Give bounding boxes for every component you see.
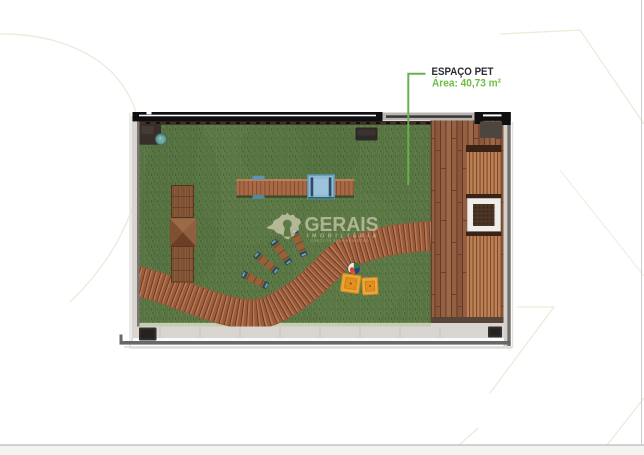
svg-text:ESPAÇO PET: ESPAÇO PET [432, 66, 494, 78]
svg-text:Área: 40,73 m²: Área: 40,73 m² [432, 77, 501, 90]
svg-text:CRECI PJ 0000 REGISTRO: CRECI PJ 0000 REGISTRO [311, 239, 370, 243]
